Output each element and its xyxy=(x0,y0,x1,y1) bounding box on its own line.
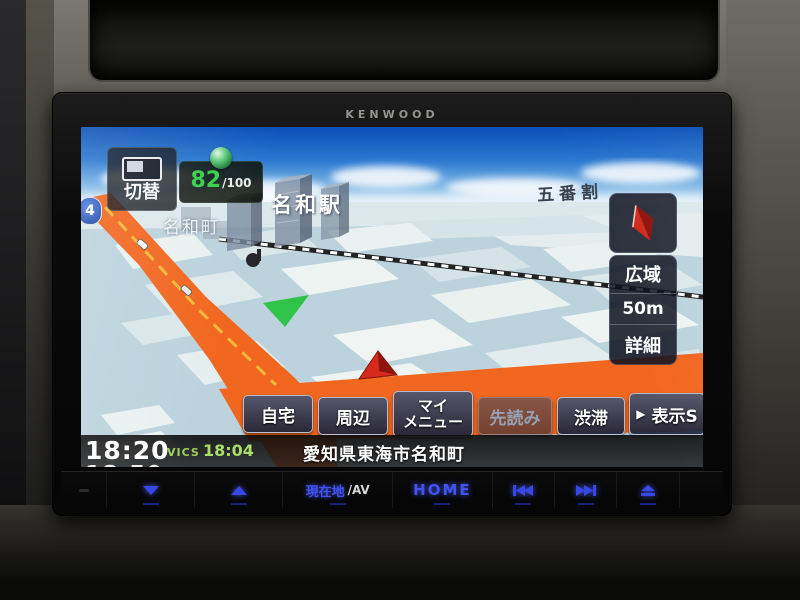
home-hardware-label: HOME xyxy=(413,481,471,499)
power-button[interactable] xyxy=(61,472,107,508)
eject-button[interactable] xyxy=(617,472,679,508)
route-number-shield: 4 xyxy=(81,197,102,225)
home-hardware-button[interactable]: HOME xyxy=(393,472,493,508)
traffic-button[interactable]: 渋滞 xyxy=(557,397,625,435)
previous-track-icon xyxy=(511,483,535,498)
compass-needle-icon xyxy=(623,200,663,246)
hardware-button-bar: 現在地 /AV HOME xyxy=(61,471,723,508)
aux-button[interactable] xyxy=(680,472,723,508)
display-s-button[interactable]: ▶ 表示S xyxy=(629,393,703,435)
previous-track-button[interactable] xyxy=(493,472,555,508)
current-location-label: 現在地 xyxy=(306,481,345,500)
nearby-search-button[interactable]: 周辺 xyxy=(318,397,388,435)
vics-label: VICS xyxy=(167,446,200,459)
my-menu-line1: マイ xyxy=(418,398,448,415)
eject-icon xyxy=(637,483,659,498)
dashboard-storage-cubby xyxy=(88,0,720,82)
eco-globe-icon xyxy=(210,147,232,169)
current-address: 愛知県東海市名和町 xyxy=(303,440,465,465)
home-destination-button[interactable]: 自宅 xyxy=(243,395,313,433)
volume-up-button[interactable] xyxy=(195,472,283,508)
power-dash-icon xyxy=(79,489,89,492)
my-menu-line2: メニュー xyxy=(403,414,463,431)
screen-switch-label: 切替 xyxy=(124,184,160,202)
next-track-button[interactable] xyxy=(555,472,617,508)
vics-time: 18:04 xyxy=(203,441,254,460)
monitor-icon xyxy=(122,157,162,181)
screen-switch-button[interactable]: 切替 xyxy=(107,147,177,211)
volume-up-icon xyxy=(228,483,250,498)
map-label-district: 五番割 xyxy=(536,177,603,205)
head-unit: KENWOOD xyxy=(52,92,732,516)
compass-button[interactable] xyxy=(609,193,677,253)
current-location-av-button[interactable]: 現在地 /AV xyxy=(283,472,393,508)
map-scale-value: 50m xyxy=(610,294,676,326)
display-s-label: 表示S xyxy=(651,402,697,427)
dashboard-lower-panel xyxy=(0,505,800,600)
nav-screen[interactable]: 名和町 名和駅 五番割 4 切替 82 /100 xyxy=(81,127,703,467)
brand-logo: KENWOOD xyxy=(53,108,731,121)
eco-score-denominator: /100 xyxy=(222,176,251,190)
volume-down-icon xyxy=(140,483,162,498)
volume-down-button[interactable] xyxy=(107,472,195,508)
eco-score-value: 82 xyxy=(190,170,221,192)
eco-score-badge[interactable]: 82 /100 xyxy=(179,147,265,207)
lookahead-button-disabled: 先読み xyxy=(478,397,552,435)
zoom-out-button[interactable]: 広域 xyxy=(610,256,676,294)
zoom-control: 広域 50m 詳細 xyxy=(609,255,677,365)
clock-secondary-clipped: 18:50 xyxy=(85,462,163,467)
av-label: /AV xyxy=(348,483,370,497)
map-label-station: 名和駅 xyxy=(271,189,343,219)
zoom-in-button[interactable]: 詳細 xyxy=(610,325,676,364)
clock: 18:20 xyxy=(85,436,170,465)
my-menu-button[interactable]: マイ メニュー xyxy=(393,391,473,437)
map-label-town: 名和町 xyxy=(163,213,220,238)
dashboard-photo: KENWOOD xyxy=(0,0,800,600)
play-triangle-icon: ▶ xyxy=(636,408,645,420)
next-track-icon xyxy=(574,483,598,498)
status-bar: 18:20 18:50 VICS 18:04 愛知県東海市名和町 xyxy=(81,435,703,467)
